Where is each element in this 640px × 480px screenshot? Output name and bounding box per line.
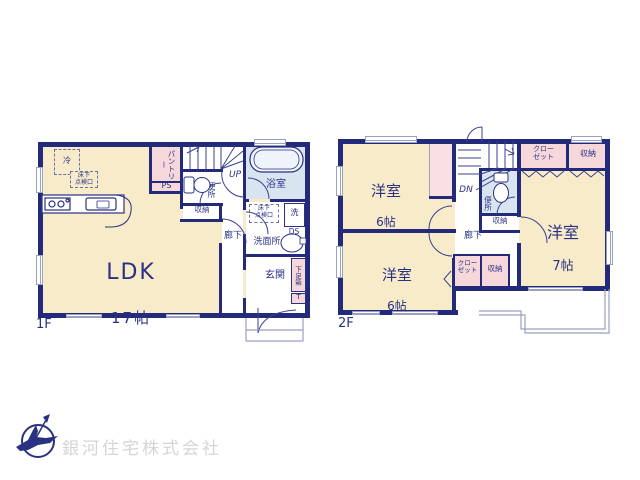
entrance-porch bbox=[246, 318, 303, 341]
ds-label: DS bbox=[283, 228, 305, 236]
wall bbox=[246, 199, 249, 202]
room-sw-size: 6帖 bbox=[366, 300, 428, 313]
wall bbox=[429, 196, 453, 199]
wall bbox=[517, 243, 521, 286]
up-label: UP bbox=[224, 170, 246, 180]
hallway-2f-label: 廊下 bbox=[460, 231, 486, 241]
ldk-name: LDK bbox=[81, 261, 181, 286]
wall bbox=[243, 298, 246, 318]
ps-label: PS bbox=[151, 182, 182, 191]
storage-mid-label: 収納 bbox=[482, 217, 518, 225]
wall bbox=[270, 199, 306, 202]
window bbox=[36, 167, 43, 193]
closet-s-label: クロー ゼット bbox=[454, 260, 481, 275]
room-e-size: 7帖 bbox=[533, 260, 593, 275]
company-name: 銀河住宅株式会社 bbox=[62, 434, 222, 459]
room-nw-label: 洋室 6帖 bbox=[356, 166, 416, 247]
wall bbox=[605, 139, 610, 291]
window bbox=[336, 246, 343, 278]
closet-1f-label: 収納 bbox=[182, 206, 222, 214]
toilet-2f-label: 便所 bbox=[484, 191, 492, 215]
room-e-label: 洋室 7帖 bbox=[533, 206, 593, 292]
storage-s-label: 収納 bbox=[481, 265, 509, 273]
wall bbox=[180, 145, 183, 209]
pantry-label: パントリー bbox=[160, 149, 175, 181]
wall bbox=[180, 169, 223, 172]
wall bbox=[519, 168, 610, 171]
washroom-label: 洗面所 bbox=[246, 237, 288, 247]
window bbox=[254, 139, 286, 146]
floor1-label: 1F bbox=[36, 318, 66, 333]
ldk-size: 17帖 bbox=[81, 310, 181, 327]
bathroom-fill bbox=[246, 145, 306, 199]
outside-2f-fill bbox=[455, 291, 610, 317]
room-sw-name: 洋室 bbox=[366, 267, 428, 284]
floor2-label: 2F bbox=[338, 317, 368, 332]
window bbox=[36, 255, 43, 285]
window bbox=[571, 136, 602, 143]
hallway-1f-label: 廊下 bbox=[221, 231, 245, 241]
wash-hatch-label: 床下 点検口 bbox=[249, 206, 279, 219]
window bbox=[365, 136, 417, 143]
wall bbox=[149, 191, 183, 194]
room-nw-size: 6帖 bbox=[356, 216, 416, 229]
wall bbox=[180, 219, 223, 222]
wall bbox=[246, 254, 306, 257]
company-logo-icon bbox=[16, 414, 58, 457]
shoebox-t-label: T bbox=[291, 294, 306, 302]
room-e-name: 洋室 bbox=[533, 224, 593, 242]
closet-n-label: クロー ゼット bbox=[520, 146, 567, 162]
floorplan-page: LDK 17帖 冷 床下 点検口 パントリー PS UP 便所 収納 廊下 浴室… bbox=[0, 0, 640, 480]
storage-n-label: 収納 bbox=[568, 150, 608, 159]
dn-label: DN bbox=[454, 185, 478, 195]
fridge-label: 冷 bbox=[54, 157, 80, 166]
window bbox=[606, 231, 613, 265]
wall bbox=[479, 168, 521, 171]
wall bbox=[219, 243, 222, 313]
ldk-label: LDK 17帖 bbox=[81, 236, 181, 351]
washer-label: 洗 bbox=[284, 209, 305, 218]
room-nw-name: 洋室 bbox=[356, 183, 416, 200]
wall bbox=[517, 171, 521, 217]
hallway-1f-fill bbox=[222, 200, 243, 313]
bathroom-label: 浴室 bbox=[256, 179, 296, 190]
room-sw-label: 洋室 6帖 bbox=[366, 250, 428, 331]
window bbox=[336, 166, 343, 196]
toilet-1f-label: 便所 bbox=[207, 177, 215, 203]
shoebox-label: 下足箱 bbox=[294, 261, 301, 291]
entrance-label: 玄関 bbox=[254, 270, 296, 281]
floor-hatch-label: 床下 点検口 bbox=[70, 173, 98, 186]
room-nw-closet-strip bbox=[429, 144, 452, 196]
